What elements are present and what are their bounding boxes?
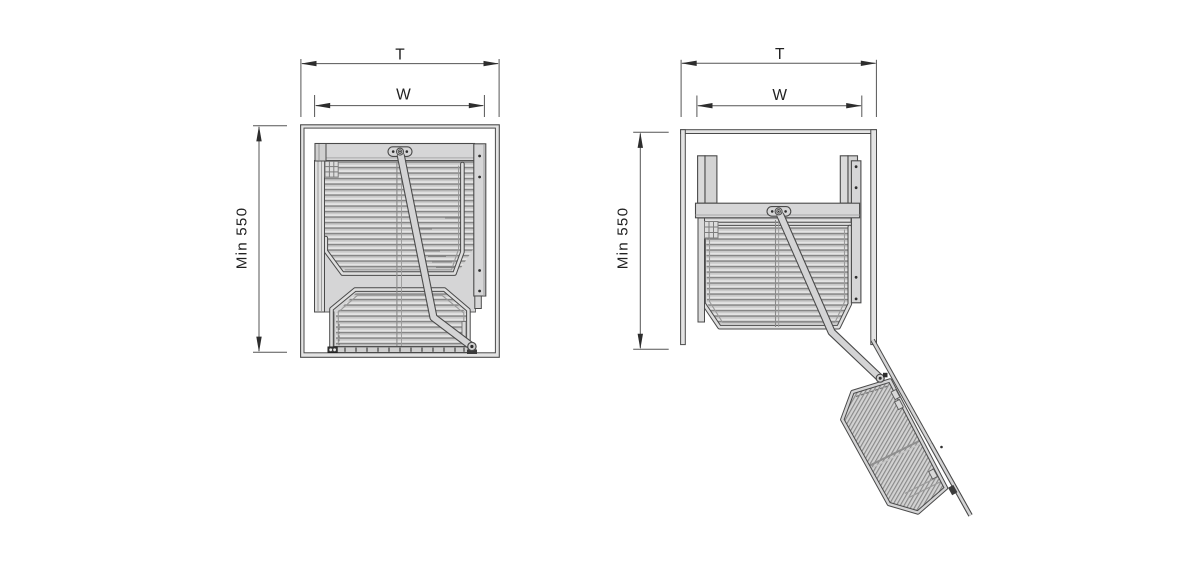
svg-text:W: W bbox=[396, 87, 411, 104]
svg-text:Min 550: Min 550 bbox=[614, 207, 631, 269]
svg-text:T: T bbox=[775, 46, 785, 63]
svg-text:T: T bbox=[395, 47, 405, 64]
svg-text:W: W bbox=[772, 87, 787, 104]
svg-text:Min 550: Min 550 bbox=[233, 207, 250, 269]
